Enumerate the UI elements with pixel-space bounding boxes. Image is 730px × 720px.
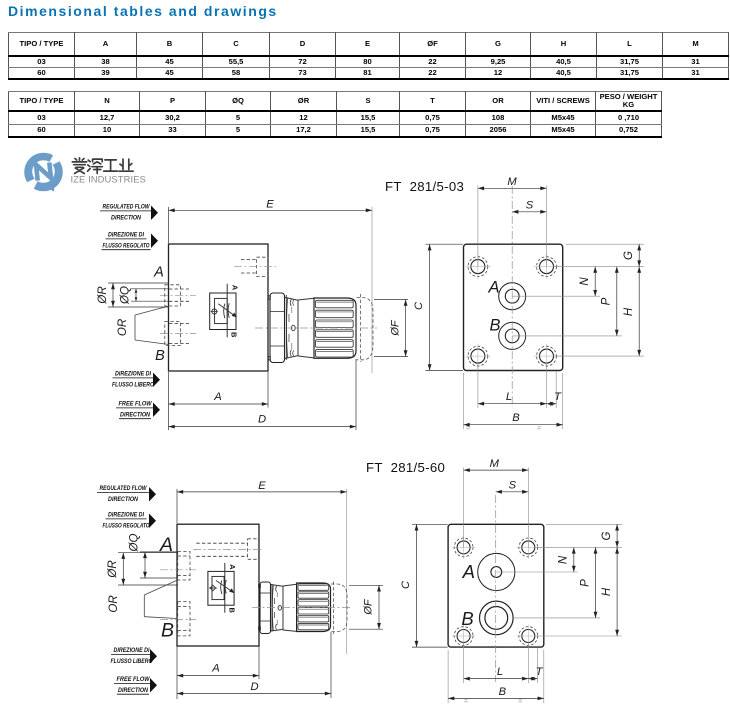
svg-text:ØF: ØF [363, 598, 375, 616]
svg-text:E: E [258, 480, 266, 492]
svg-text:OR: OR [117, 319, 129, 336]
svg-text:=: = [518, 699, 522, 706]
svg-text:B: B [161, 620, 174, 642]
svg-text:FREE FLOW: FREE FLOW [119, 401, 153, 408]
svg-text:C: C [413, 301, 425, 310]
svg-text:A: A [487, 279, 499, 297]
svg-text:G: G [601, 531, 613, 540]
svg-text:A: A [213, 391, 221, 403]
svg-text:B: B [499, 686, 507, 698]
svg-text:FLUSSO REGOLATO: FLUSSO REGOLATO [103, 243, 150, 250]
svg-text:=: = [537, 426, 541, 433]
svg-text:H: H [623, 307, 635, 316]
svg-text:L: L [506, 391, 512, 403]
svg-text:DIRECTION: DIRECTION [118, 687, 148, 694]
svg-text:N: N [579, 277, 591, 286]
svg-text:S: S [526, 200, 534, 212]
svg-text:DIREZIONE DI: DIREZIONE DI [108, 512, 144, 519]
svg-text:ØR: ØR [97, 286, 109, 304]
svg-text:M: M [490, 458, 500, 470]
svg-text:FREE FLOW: FREE FLOW [117, 676, 151, 683]
svg-text:=: = [466, 426, 470, 433]
svg-text:DIRECTION: DIRECTION [111, 215, 141, 222]
svg-text:FLUSSO REGOLATO: FLUSSO REGOLATO [103, 523, 150, 530]
svg-text:REGULATED FLOW: REGULATED FLOW [103, 204, 151, 211]
svg-text:ØQ: ØQ [129, 534, 141, 553]
svg-text:=: = [464, 699, 468, 706]
svg-text:DIRECTION: DIRECTION [108, 496, 138, 503]
svg-text:B: B [512, 412, 520, 424]
svg-text:DIRECTION: DIRECTION [120, 412, 150, 419]
svg-text:B: B [155, 348, 165, 364]
svg-text:S: S [509, 480, 517, 492]
svg-text:T: T [536, 666, 544, 678]
svg-text:ØR: ØR [107, 560, 119, 578]
svg-text:REGULATED FLOW: REGULATED FLOW [100, 485, 148, 492]
svg-text:ØQ: ØQ [120, 286, 132, 305]
svg-text:FLUSSO LIBERO: FLUSSO LIBERO [112, 382, 154, 389]
svg-text:D: D [258, 414, 266, 426]
svg-text:T: T [554, 391, 562, 403]
svg-text:A: A [462, 561, 475, 582]
svg-text:C: C [400, 580, 412, 589]
svg-text:A: A [228, 564, 237, 570]
svg-text:B: B [489, 317, 500, 335]
svg-text:B: B [461, 608, 473, 629]
svg-text:L: L [497, 666, 503, 678]
svg-text:DIREZIONE DI: DIREZIONE DI [115, 371, 151, 378]
svg-text:E: E [266, 199, 274, 211]
svg-text:A: A [153, 265, 164, 281]
svg-text:A: A [211, 663, 219, 675]
svg-text:N: N [558, 555, 570, 564]
svg-text:B: B [230, 332, 239, 338]
svg-text:A: A [231, 285, 240, 291]
svg-text:DIREZIONE DI: DIREZIONE DI [108, 232, 144, 239]
svg-text:M: M [507, 176, 517, 188]
svg-text:ØF: ØF [390, 319, 402, 337]
svg-text:FLUSSO LIBERO: FLUSSO LIBERO [111, 658, 153, 665]
svg-text:G: G [623, 251, 635, 260]
svg-text:OR: OR [108, 595, 120, 612]
svg-text:P: P [601, 297, 613, 305]
svg-text:DIREZIONE DI: DIREZIONE DI [114, 647, 150, 654]
svg-text:D: D [250, 681, 258, 693]
svg-text:B: B [227, 607, 236, 613]
svg-text:H: H [601, 587, 613, 596]
svg-text:P: P [580, 579, 592, 587]
